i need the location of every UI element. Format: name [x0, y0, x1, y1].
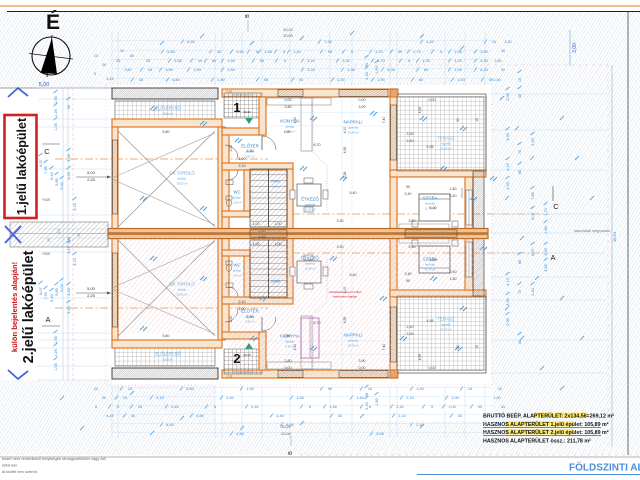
svg-text:1,55: 1,55	[54, 336, 58, 343]
svg-text:9,46: 9,46	[67, 306, 71, 313]
svg-text:1,80: 1,80	[375, 398, 379, 405]
svg-text:GK TÁROLÓ: GK TÁROLÓ	[169, 171, 195, 176]
svg-text:4,10: 4,10	[506, 278, 510, 285]
svg-text:B: B	[245, 14, 251, 18]
svg-text:1,90: 1,90	[284, 334, 291, 338]
svg-text:NAPPALI: NAPPALI	[343, 120, 362, 125]
svg-text:3,00: 3,00	[544, 248, 548, 255]
svg-text:2,80: 2,80	[285, 105, 292, 109]
svg-text:1: 1	[233, 100, 240, 115]
svg-text:4,10: 4,10	[293, 117, 297, 124]
svg-text:5,00: 5,00	[87, 170, 96, 175]
svg-text:FEDETT T.: FEDETT T.	[233, 93, 253, 98]
svg-text:HASZNOS ALAPTERÜLET össz.: 211: HASZNOS ALAPTERÜLET össz.: 211,78 m²	[483, 437, 591, 444]
svg-text:parketta: parketta	[348, 126, 359, 130]
svg-text:8,07: 8,07	[531, 212, 535, 219]
svg-text:3,30: 3,30	[506, 298, 510, 305]
svg-text:+0,00: +0,00	[42, 252, 50, 256]
svg-text:ai kivitel terv szerint: ai kivitel terv szerint	[2, 469, 38, 474]
svg-text:25,40 m²: 25,40 m²	[347, 131, 358, 135]
svg-text:4,95: 4,95	[418, 354, 422, 361]
svg-text:5: 5	[94, 72, 96, 76]
svg-text:85: 85	[518, 260, 522, 264]
svg-text:5,60: 5,60	[409, 245, 416, 249]
svg-text:20,20: 20,20	[281, 425, 291, 429]
svg-text:2,60: 2,60	[125, 68, 132, 72]
svg-text:5,00: 5,00	[87, 286, 96, 291]
svg-text:7,40: 7,40	[382, 344, 386, 351]
svg-text:30: 30	[518, 94, 522, 98]
svg-text:bejelentés alapján: bejelentés alapján	[333, 295, 358, 299]
svg-text:2,40: 2,40	[365, 402, 369, 409]
svg-text:2,10: 2,10	[239, 164, 246, 168]
svg-text:2,10: 2,10	[497, 414, 504, 418]
svg-text:1,80: 1,80	[544, 226, 548, 233]
svg-text:30: 30	[501, 49, 505, 53]
svg-text:ÉTKEZŐ: ÉTKEZŐ	[301, 197, 319, 202]
svg-text:KAM.: KAM.	[271, 180, 280, 184]
svg-text:2,30: 2,30	[247, 315, 254, 319]
svg-text:5,40: 5,40	[350, 273, 357, 277]
svg-text:7,85: 7,85	[531, 192, 535, 199]
svg-text:3 08: 3 08	[226, 90, 232, 94]
svg-text:5,00: 5,00	[39, 82, 50, 88]
svg-text:2,30: 2,30	[229, 145, 233, 152]
svg-text:3,25: 3,25	[67, 172, 71, 179]
svg-text:HASZNOS ALAPTERÜLET 2.jelű épü: HASZNOS ALAPTERÜLET 2.jelű épület: 105,8…	[483, 429, 609, 436]
svg-text:8,00 m²: 8,00 m²	[163, 112, 173, 116]
svg-text:1,80: 1,80	[450, 277, 457, 281]
svg-text:járólap: járólap	[177, 177, 187, 181]
svg-text:WC: WC	[234, 190, 241, 195]
svg-text:0,00: 0,00	[429, 98, 436, 102]
svg-text:éssel nem rendelkező helyiség: éssel nem rendelkező helyiségek strangsz…	[2, 456, 106, 461]
svg-text:3,30: 3,30	[337, 245, 344, 249]
svg-text:2,40: 2,40	[405, 272, 412, 276]
svg-text:2,30: 2,30	[247, 149, 254, 153]
svg-text:1,20 m²: 1,20 m²	[272, 185, 281, 189]
svg-text:10: 10	[518, 78, 522, 82]
svg-text:1,94 m²: 1,94 m²	[233, 201, 242, 205]
svg-text:előznek!: előznek!	[2, 463, 17, 468]
svg-text:FÖLDSZINTI AL: FÖLDSZINTI AL	[569, 461, 640, 474]
svg-text:5,90: 5,90	[430, 206, 437, 210]
svg-text:90: 90	[406, 279, 410, 283]
svg-text:3,30: 3,30	[407, 132, 414, 136]
svg-text:3,90: 3,90	[359, 359, 366, 363]
svg-text:2,25: 2,25	[87, 293, 96, 298]
svg-text:5,90: 5,90	[430, 258, 437, 262]
svg-text:2,2: 2,2	[57, 229, 61, 234]
svg-text:1,55: 1,55	[54, 96, 58, 103]
svg-text:3,15: 3,15	[73, 203, 77, 210]
svg-text:+0,00: +0,00	[42, 198, 50, 202]
svg-text:5,00: 5,00	[60, 182, 64, 189]
svg-text:2,40: 2,40	[531, 138, 535, 145]
svg-text:1,00: 1,00	[494, 78, 501, 82]
svg-text:1,00: 1,00	[494, 396, 501, 400]
svg-text:15: 15	[475, 345, 479, 349]
svg-text:3,00: 3,00	[572, 43, 578, 53]
svg-text:70: 70	[518, 150, 522, 154]
svg-text:5,80: 5,80	[163, 130, 170, 134]
svg-text:2,40: 2,40	[450, 194, 457, 198]
svg-text:8,00 m²: 8,00 m²	[163, 358, 173, 362]
svg-text:10: 10	[94, 387, 98, 391]
svg-text:6,70: 6,70	[314, 143, 321, 147]
svg-text:fagyálló: fagyálló	[441, 323, 451, 327]
svg-text:3,15: 3,15	[67, 246, 71, 253]
svg-text:10: 10	[492, 40, 496, 44]
svg-text:8,07: 8,07	[39, 159, 43, 166]
svg-text:3,30: 3,30	[407, 332, 414, 336]
svg-text:3,30: 3,30	[506, 133, 510, 140]
svg-text:1,70: 1,70	[544, 208, 548, 215]
svg-text:4,10: 4,10	[506, 163, 510, 170]
svg-text:2,00: 2,00	[506, 93, 510, 100]
svg-text:1,80: 1,80	[450, 187, 457, 191]
svg-text:2,25: 2,25	[87, 177, 96, 182]
svg-text:5,85: 5,85	[55, 178, 59, 185]
svg-text:30: 30	[501, 405, 505, 409]
svg-text:ELŐLÉPCSŐ: ELŐLÉPCSŐ	[155, 106, 181, 111]
svg-text:4,95: 4,95	[343, 147, 347, 154]
svg-text:0,00: 0,00	[285, 98, 292, 102]
svg-text:1,80: 1,80	[375, 66, 379, 73]
svg-text:1,05: 1,05	[54, 123, 58, 130]
svg-text:0,00: 0,00	[285, 366, 292, 370]
svg-text:5,80: 5,80	[163, 334, 170, 338]
svg-text:1,00: 1,00	[253, 242, 260, 246]
svg-text:1.jelű lakóépület: 1.jelű lakóépület	[15, 117, 29, 215]
svg-text:3,90: 3,90	[359, 105, 366, 109]
svg-text:70: 70	[518, 290, 522, 294]
svg-text:20,00 m²: 20,00 m²	[440, 328, 451, 332]
svg-text:járólap: járólap	[232, 196, 241, 200]
svg-text:1,90: 1,90	[284, 130, 291, 134]
svg-text:É: É	[46, 11, 60, 34]
svg-text:ELŐLÉPCSŐ: ELŐLÉPCSŐ	[155, 352, 181, 357]
svg-text:2,40: 2,40	[495, 59, 502, 63]
svg-text:parketta: parketta	[305, 203, 316, 207]
svg-text:6,70: 6,70	[314, 321, 321, 325]
svg-text:laminált: laminált	[425, 202, 435, 206]
svg-text:25: 25	[47, 238, 51, 242]
svg-text:4,95: 4,95	[418, 107, 422, 114]
svg-text:10: 10	[94, 54, 98, 58]
svg-text:2.jelű lakóépület: 2.jelű lakóépület	[21, 250, 37, 363]
svg-text:4,10: 4,10	[343, 127, 347, 134]
svg-text:4,10: 4,10	[343, 287, 347, 294]
svg-text:1,00: 1,00	[239, 157, 246, 161]
svg-text:1,25: 1,25	[54, 349, 58, 356]
svg-text:4,15: 4,15	[107, 414, 114, 418]
svg-text:4,20: 4,20	[505, 40, 512, 44]
svg-text:A: A	[45, 315, 50, 324]
svg-text:18,54: 18,54	[612, 231, 617, 242]
svg-text:85: 85	[518, 170, 522, 174]
svg-text:fagyálló: fagyálló	[441, 142, 451, 146]
svg-text:30: 30	[501, 68, 505, 72]
svg-text:5,40: 5,40	[350, 191, 357, 195]
svg-text:3,15: 3,15	[73, 258, 77, 265]
svg-text:2,40: 2,40	[407, 139, 414, 143]
svg-text:2,40: 2,40	[531, 288, 535, 295]
svg-text:30: 30	[518, 340, 522, 344]
svg-text:20,00 m²: 20,00 m²	[440, 147, 451, 151]
svg-text:5,00: 5,00	[60, 284, 64, 291]
svg-text:TERASZ: TERASZ	[437, 317, 455, 322]
svg-text:7,40: 7,40	[382, 117, 386, 124]
svg-text:2,40: 2,40	[450, 270, 457, 274]
svg-text:8,07: 8,07	[531, 248, 535, 255]
svg-text:0,00: 0,00	[359, 366, 366, 370]
svg-text:30: 30	[67, 105, 71, 109]
svg-text:6,40: 6,40	[50, 294, 54, 301]
svg-text:2,80: 2,80	[285, 359, 292, 363]
svg-text:használati megosztás: használati megosztás	[574, 229, 611, 233]
svg-text:4,95: 4,95	[343, 317, 347, 324]
svg-text:2,10: 2,10	[239, 300, 246, 304]
svg-text:11,09 m²: 11,09 m²	[305, 208, 316, 212]
svg-text:2,30: 2,30	[229, 316, 233, 323]
svg-text:4,15: 4,15	[107, 77, 114, 81]
svg-text:1,00: 1,00	[275, 242, 282, 246]
svg-text:30: 30	[456, 345, 460, 349]
svg-text:25: 25	[116, 59, 120, 63]
svg-text:3,30: 3,30	[337, 219, 344, 223]
svg-text:5,60: 5,60	[409, 219, 416, 223]
svg-text:6,40: 6,40	[50, 172, 54, 179]
svg-text:1,00: 1,00	[253, 222, 260, 226]
svg-text:ELŐTÉR: ELŐTÉR	[241, 144, 259, 149]
svg-text:15: 15	[475, 118, 479, 122]
svg-text:TERASZ: TERASZ	[437, 136, 455, 141]
svg-text:1,00: 1,00	[275, 222, 282, 226]
svg-text:4,40: 4,40	[506, 182, 510, 189]
svg-text:1,05: 1,05	[54, 363, 58, 370]
svg-text:A: A	[550, 253, 555, 262]
svg-text:4,10: 4,10	[293, 344, 297, 351]
svg-text:3,25: 3,25	[67, 288, 71, 295]
svg-text:60: 60	[130, 54, 134, 58]
svg-text:2,10: 2,10	[259, 235, 266, 239]
svg-text:külön bejelentés alapján!: külön bejelentés alapján!	[10, 262, 19, 352]
svg-text:5,87 m²: 5,87 m²	[245, 155, 255, 159]
svg-text:járólap: járólap	[285, 125, 295, 129]
svg-text:3 08: 3 08	[226, 375, 232, 379]
svg-text:1,90: 1,90	[494, 423, 501, 427]
svg-text:30: 30	[456, 118, 460, 122]
svg-text:2,40: 2,40	[407, 325, 414, 329]
svg-text:4,95: 4,95	[427, 145, 434, 149]
svg-text:1,25: 1,25	[54, 109, 58, 116]
svg-text:0,00: 0,00	[359, 98, 366, 102]
svg-text:3,38: 3,38	[343, 172, 347, 179]
svg-text:KONYHA: KONYHA	[280, 119, 300, 124]
svg-text:7,95: 7,95	[44, 292, 48, 299]
svg-text:60x90: 60x90	[243, 110, 251, 114]
svg-text:7,95: 7,95	[44, 166, 48, 173]
svg-text:C: C	[44, 147, 50, 156]
svg-text:20,20: 20,20	[283, 28, 293, 32]
svg-text:1,00: 1,00	[239, 307, 246, 311]
svg-text:33,53 m²: 33,53 m²	[176, 182, 187, 186]
svg-text:55: 55	[77, 233, 81, 237]
svg-text:20,00: 20,00	[283, 34, 293, 38]
svg-text:9,46: 9,46	[67, 154, 71, 161]
svg-text:8,07: 8,07	[39, 287, 43, 294]
svg-text:B: B	[288, 451, 294, 455]
svg-text:30: 30	[102, 63, 106, 67]
svg-text:C: C	[553, 202, 559, 211]
svg-text:0,00: 0,00	[429, 366, 436, 370]
svg-text:2,00: 2,00	[506, 318, 510, 325]
svg-text:3,55: 3,55	[544, 264, 548, 271]
svg-text:SZOBA: SZOBA	[423, 196, 438, 201]
svg-text:5: 5	[95, 405, 97, 409]
svg-text:HASZNOS ALAPTERÜLET 1.jelű épü: HASZNOS ALAPTERÜLET 1.jelű épület: 105,8…	[483, 421, 609, 428]
svg-text:15: 15	[498, 387, 502, 391]
svg-text:2,40: 2,40	[405, 192, 412, 196]
svg-text:4,95: 4,95	[427, 319, 434, 323]
svg-text:5,85: 5,85	[55, 288, 59, 295]
svg-text:90: 90	[406, 185, 410, 189]
svg-text:2,10: 2,10	[259, 229, 266, 233]
svg-text:25: 25	[146, 59, 150, 63]
svg-text:10: 10	[120, 49, 124, 53]
svg-text:30: 30	[102, 396, 106, 400]
